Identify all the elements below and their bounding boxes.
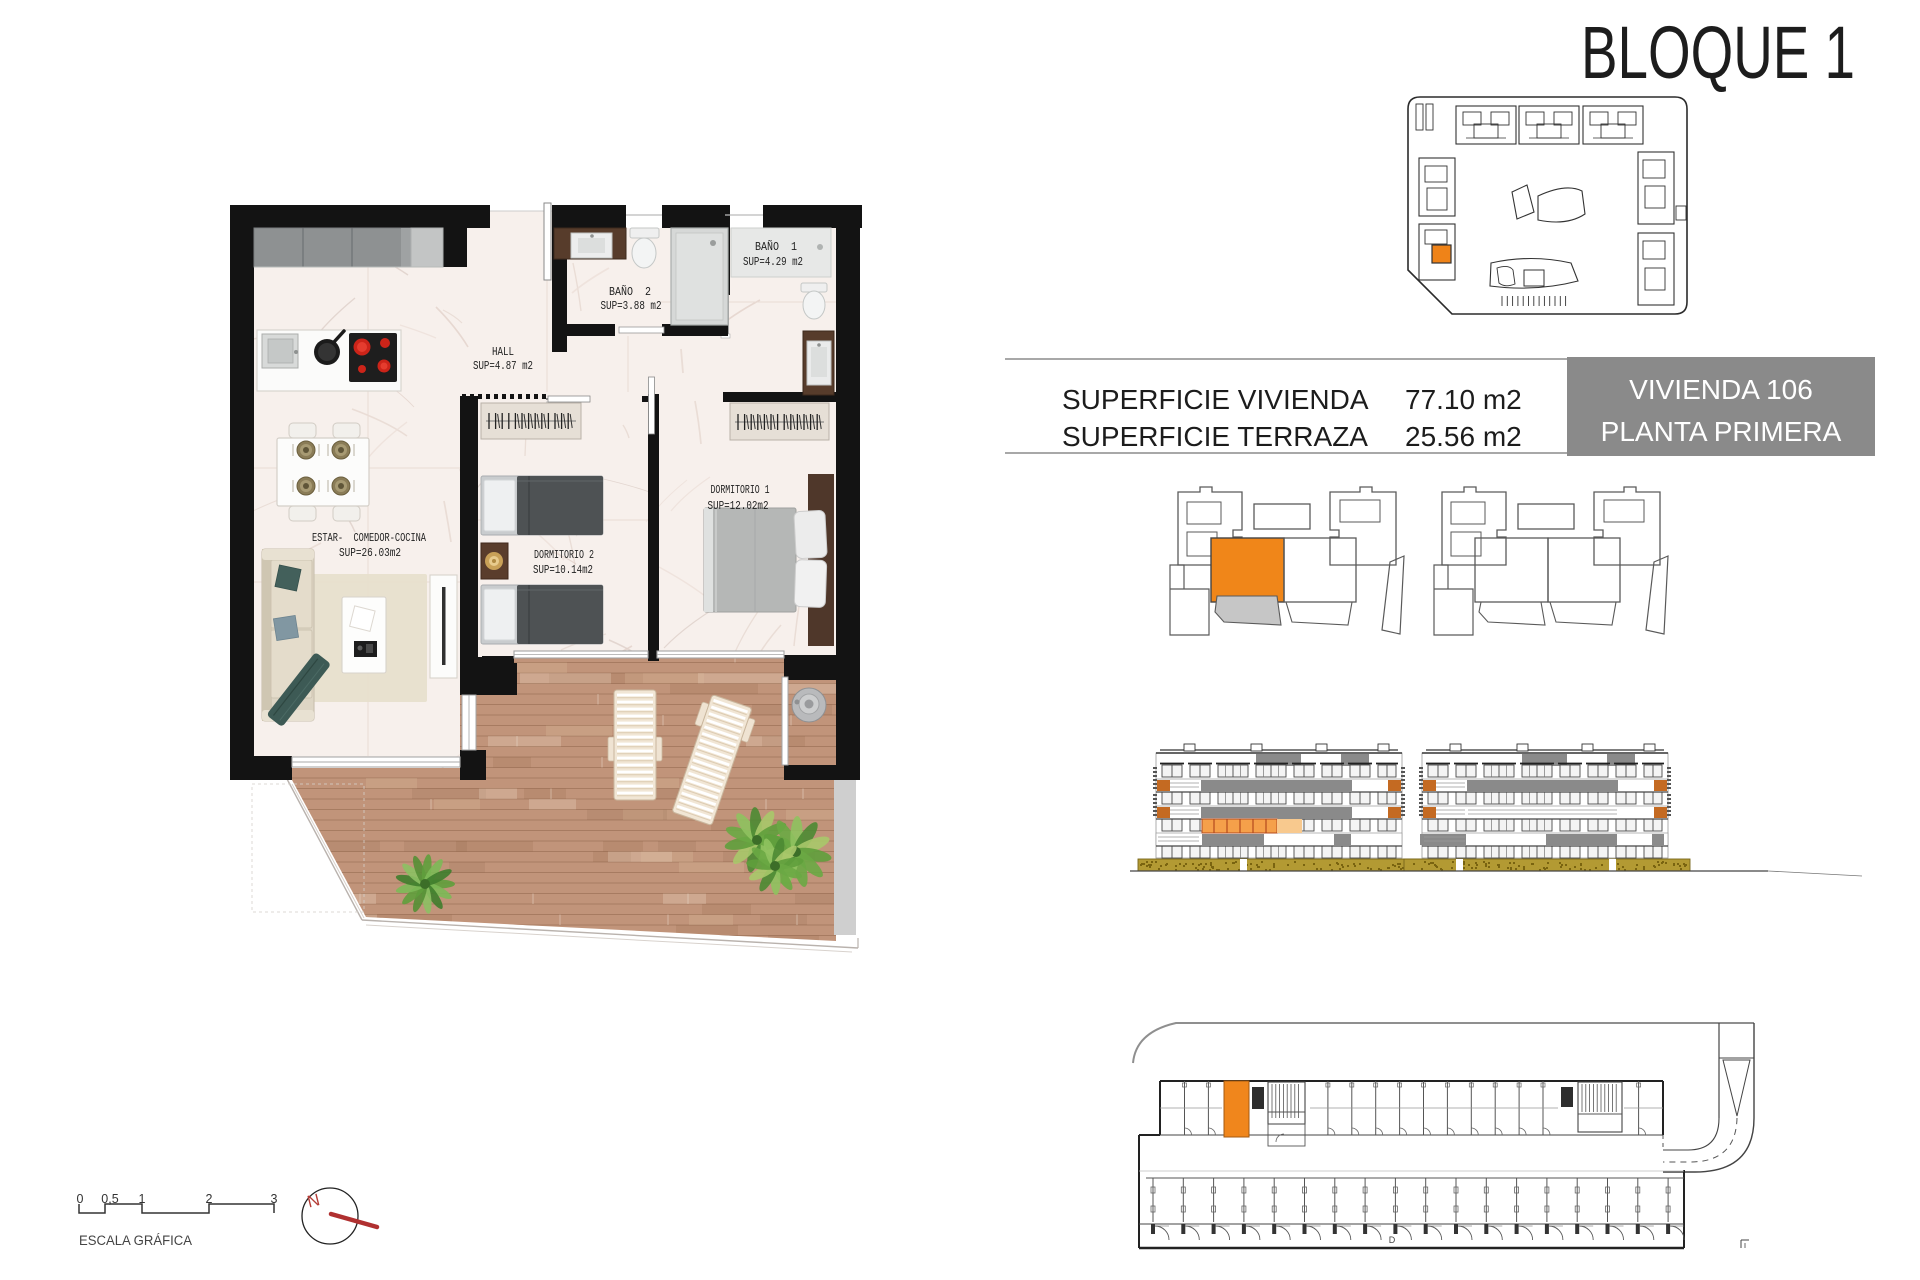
svg-text:HALL: HALL <box>492 345 514 359</box>
svg-text:BAÑO 2: BAÑO 2 <box>609 284 651 299</box>
svg-text:0: 0 <box>77 1192 84 1206</box>
svg-text:1: 1 <box>139 1192 146 1206</box>
svg-text:SUPERFICIE TERRAZA: SUPERFICIE TERRAZA <box>1062 421 1368 452</box>
svg-text:3: 3 <box>271 1192 278 1206</box>
svg-text:SUP=4.87 m2: SUP=4.87 m2 <box>473 359 533 373</box>
svg-text:BLOQUE 1: BLOQUE 1 <box>1581 11 1855 94</box>
svg-text:BAÑO 1: BAÑO 1 <box>755 239 797 254</box>
svg-text:ESCALA GRÁFICA: ESCALA GRÁFICA <box>79 1233 192 1248</box>
svg-text:25.56 m2: 25.56 m2 <box>1405 421 1522 452</box>
svg-text:2: 2 <box>206 1192 213 1206</box>
svg-text:77.10 m2: 77.10 m2 <box>1405 384 1522 415</box>
svg-text:VIVIENDA 106: VIVIENDA 106 <box>1629 374 1813 405</box>
svg-text:SUP=3.88 m2: SUP=3.88 m2 <box>601 299 662 313</box>
svg-text:D: D <box>1389 1235 1396 1245</box>
svg-text:SUP=4.29 m2: SUP=4.29 m2 <box>743 255 803 269</box>
svg-text:SUP=12.02m2: SUP=12.02m2 <box>708 499 769 513</box>
svg-text:SUP=26.03m2: SUP=26.03m2 <box>339 546 401 560</box>
svg-text:DORMITORIO 1: DORMITORIO 1 <box>711 483 770 497</box>
svg-text:DORMITORIO 2: DORMITORIO 2 <box>534 548 594 562</box>
svg-text:SUPERFICIE VIVIENDA: SUPERFICIE VIVIENDA <box>1062 384 1369 415</box>
svg-text:SUP=10.14m2: SUP=10.14m2 <box>533 563 593 577</box>
svg-text:ESTAR- COMEDOR-COCINA: ESTAR- COMEDOR-COCINA <box>312 531 427 545</box>
svg-text:PLANTA PRIMERA: PLANTA PRIMERA <box>1601 416 1842 447</box>
svg-text:0,5: 0,5 <box>101 1192 118 1206</box>
